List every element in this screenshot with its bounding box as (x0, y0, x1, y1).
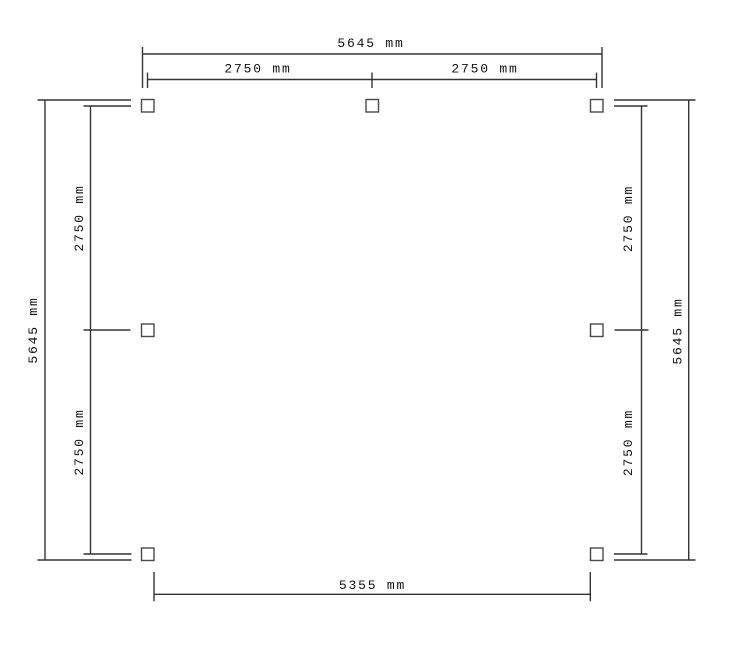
svg-text:2750 mm: 2750 mm (72, 408, 87, 475)
svg-text:2750 mm: 2750 mm (621, 185, 636, 252)
svg-text:2750 mm: 2750 mm (451, 62, 518, 77)
svg-text:5645 mm: 5645 mm (671, 297, 686, 364)
svg-text:2750 mm: 2750 mm (621, 409, 636, 476)
svg-text:5355 mm: 5355 mm (339, 578, 406, 593)
svg-text:5645 mm: 5645 mm (26, 296, 41, 363)
svg-text:2750 mm: 2750 mm (72, 184, 87, 251)
svg-text:5645 mm: 5645 mm (337, 36, 404, 51)
svg-text:2750 mm: 2750 mm (224, 62, 291, 77)
